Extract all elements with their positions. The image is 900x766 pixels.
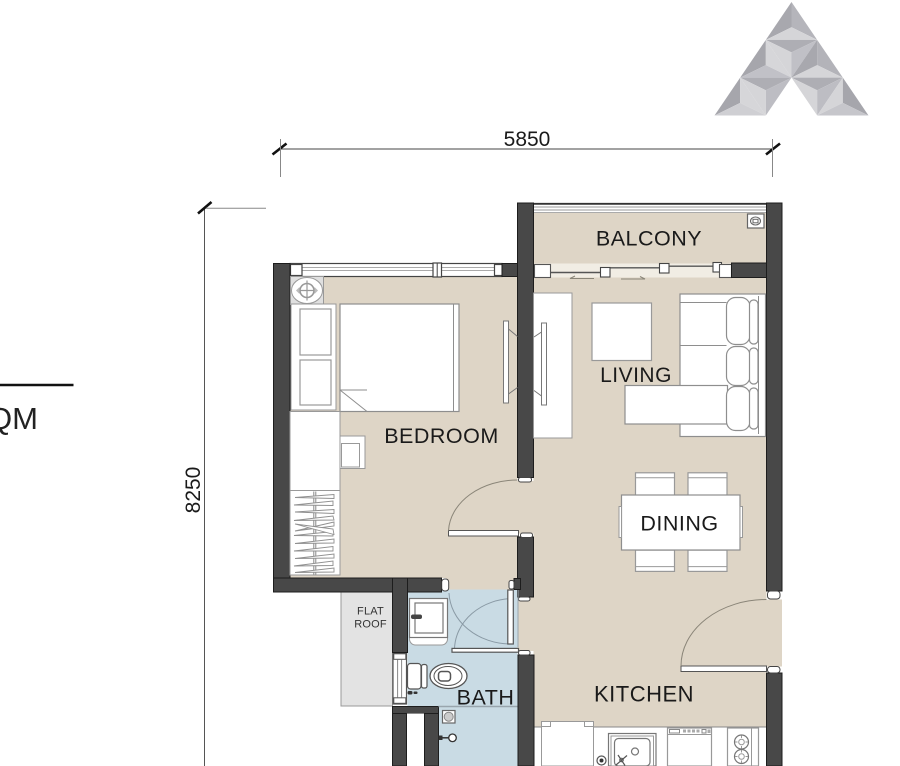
- svg-text:LIVING: LIVING: [600, 364, 672, 387]
- svg-text:5850: 5850: [504, 128, 551, 151]
- svg-text:FLAT: FLAT: [357, 606, 384, 618]
- svg-text:BATH: BATH: [457, 686, 515, 710]
- svg-text:BALCONY: BALCONY: [596, 227, 702, 251]
- svg-text:KITCHEN: KITCHEN: [594, 682, 694, 707]
- svg-text:BEDROOM: BEDROOM: [384, 424, 499, 448]
- svg-text:DINING: DINING: [640, 512, 718, 536]
- svg-text:QM: QM: [0, 401, 38, 436]
- svg-text:8250: 8250: [182, 467, 205, 514]
- svg-text:ROOF: ROOF: [354, 619, 387, 631]
